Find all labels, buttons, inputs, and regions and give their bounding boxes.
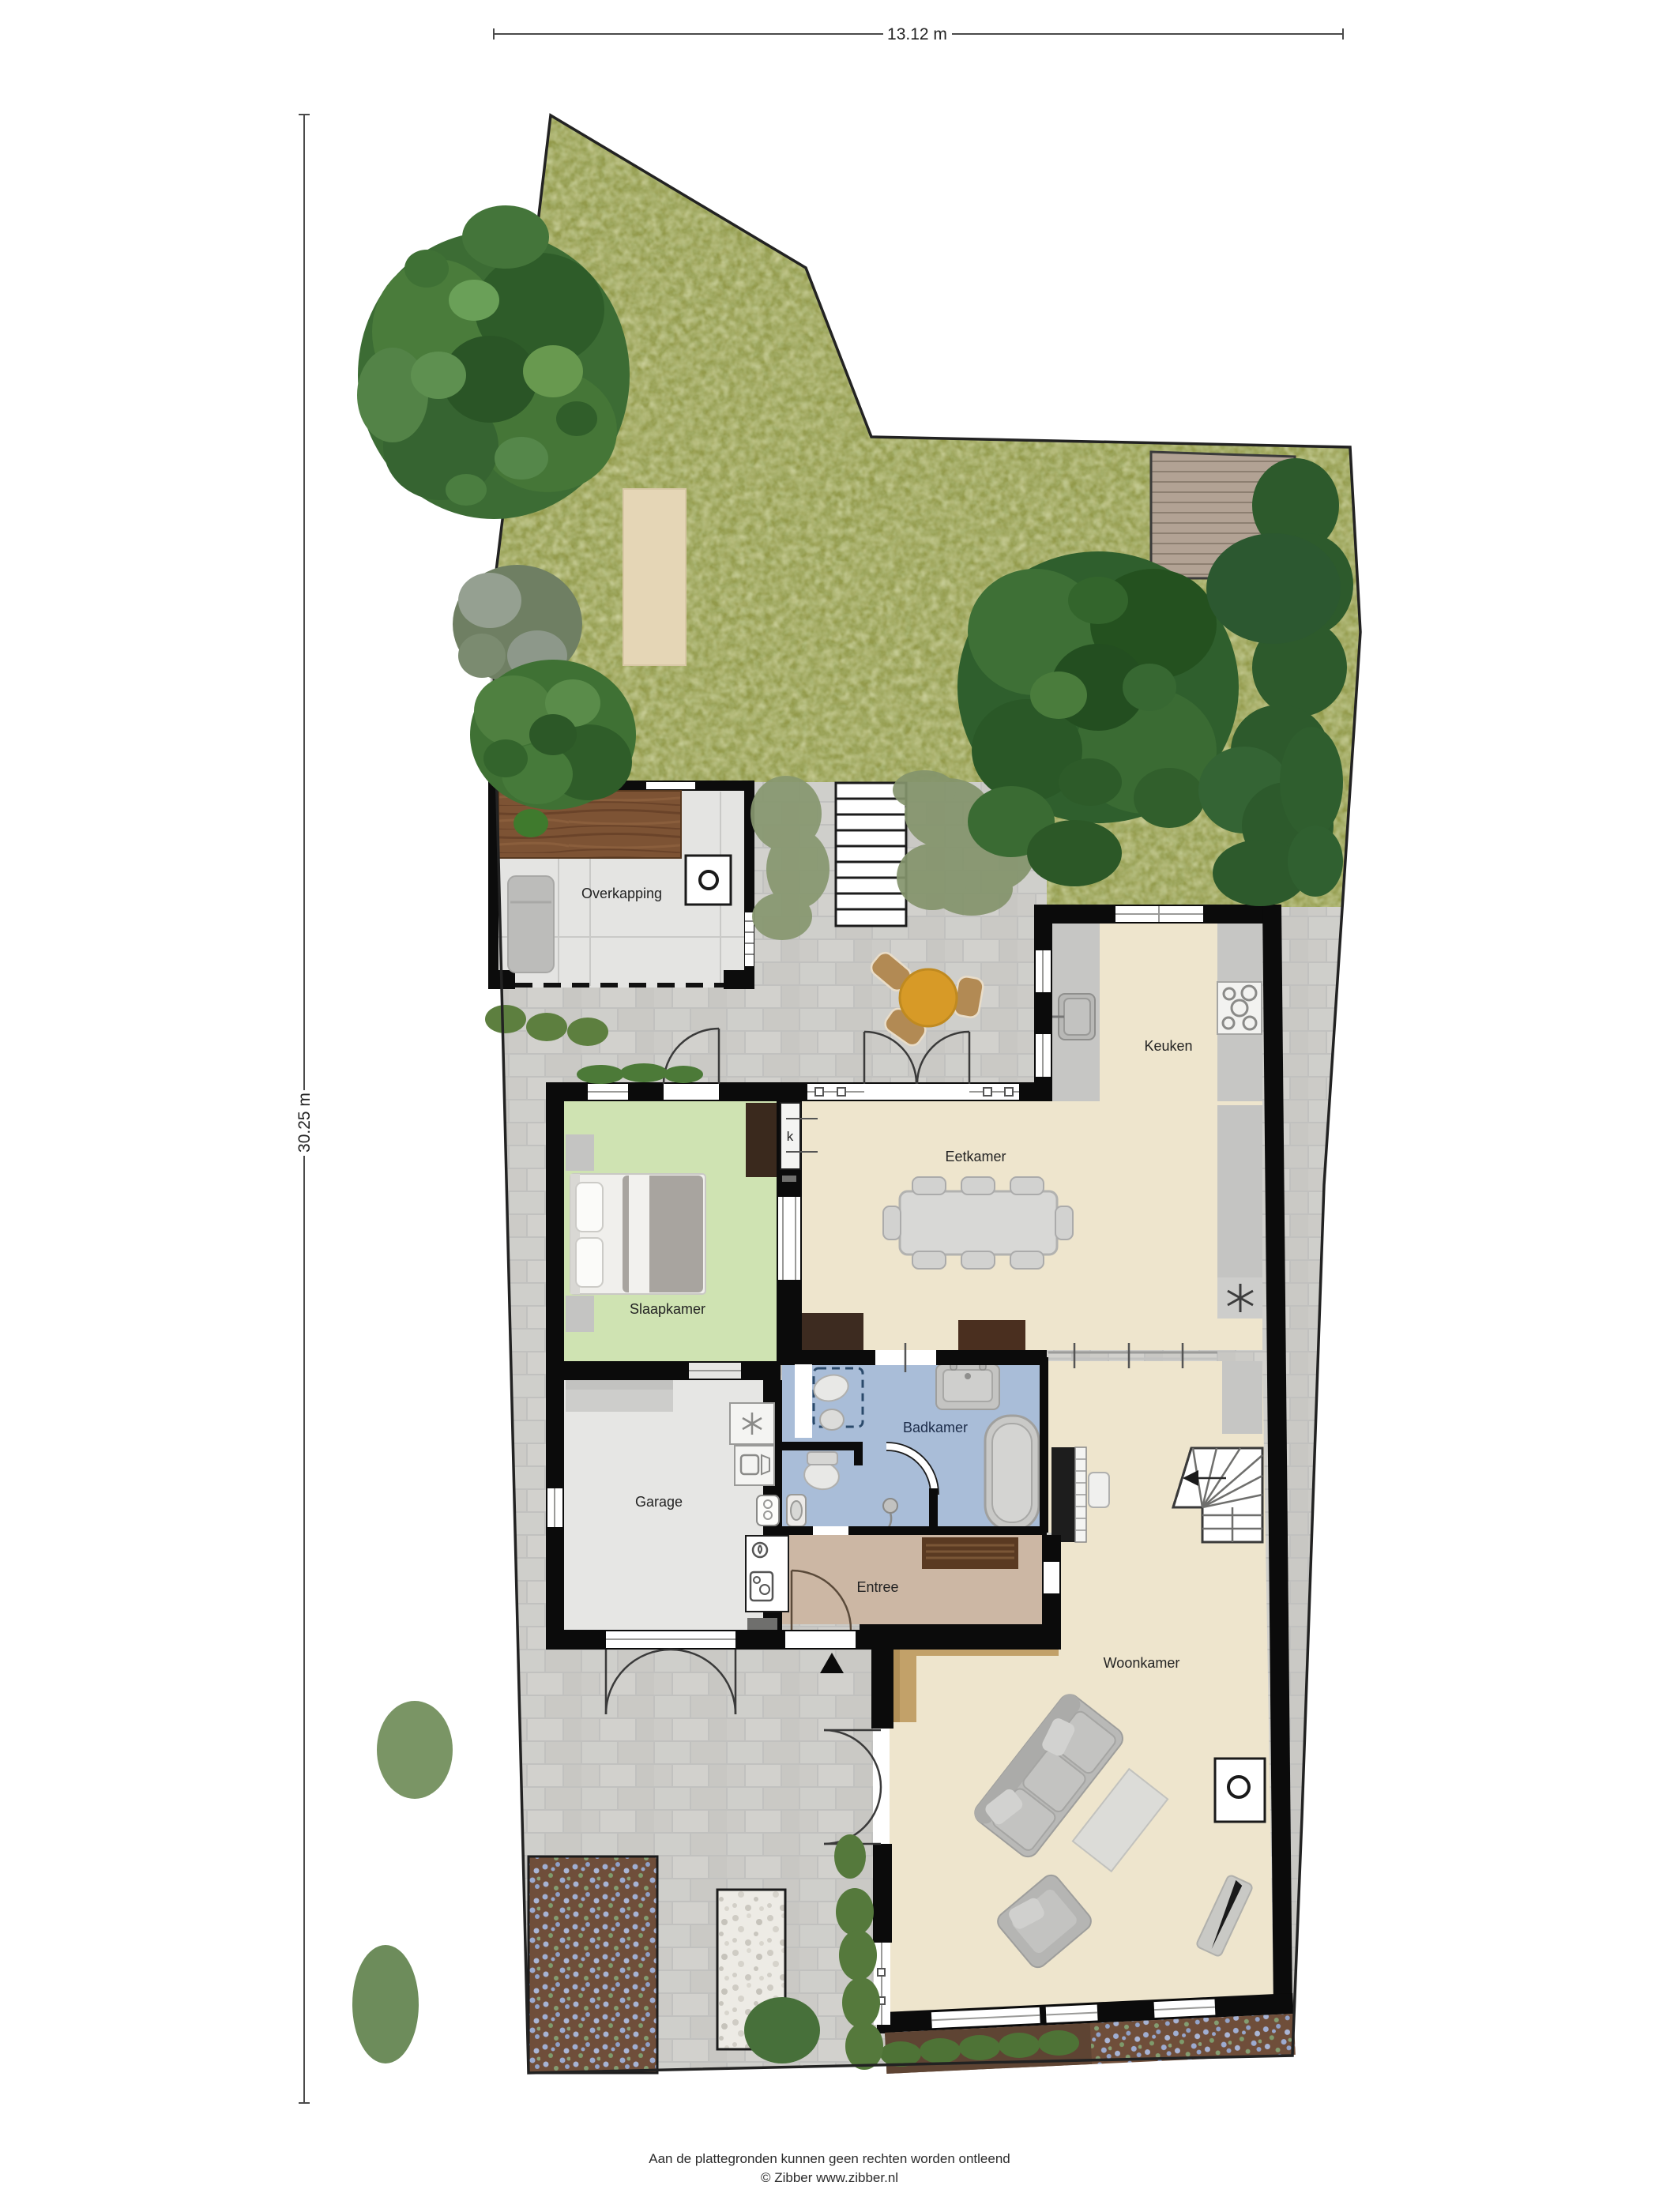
svg-text:13.12 m: 13.12 m [887, 25, 947, 43]
svg-text:k: k [787, 1129, 794, 1144]
svg-text:Slaapkamer: Slaapkamer [630, 1301, 705, 1317]
svg-text:Aan de plattegronden kunnen ge: Aan de plattegronden kunnen geen rechten… [649, 2151, 1010, 2166]
svg-text:Badkamer: Badkamer [903, 1420, 968, 1435]
svg-text:Keuken: Keuken [1144, 1038, 1192, 1054]
svg-text:Overkapping: Overkapping [581, 886, 662, 901]
svg-text:Eetkamer: Eetkamer [945, 1149, 1006, 1164]
svg-text:Entree: Entree [856, 1579, 898, 1595]
svg-text:Garage: Garage [635, 1494, 683, 1510]
svg-text:30.25 m: 30.25 m [295, 1093, 314, 1153]
svg-text:© Zibber www.zibber.nl: © Zibber www.zibber.nl [761, 2170, 898, 2185]
svg-text:Woonkamer: Woonkamer [1104, 1655, 1180, 1671]
